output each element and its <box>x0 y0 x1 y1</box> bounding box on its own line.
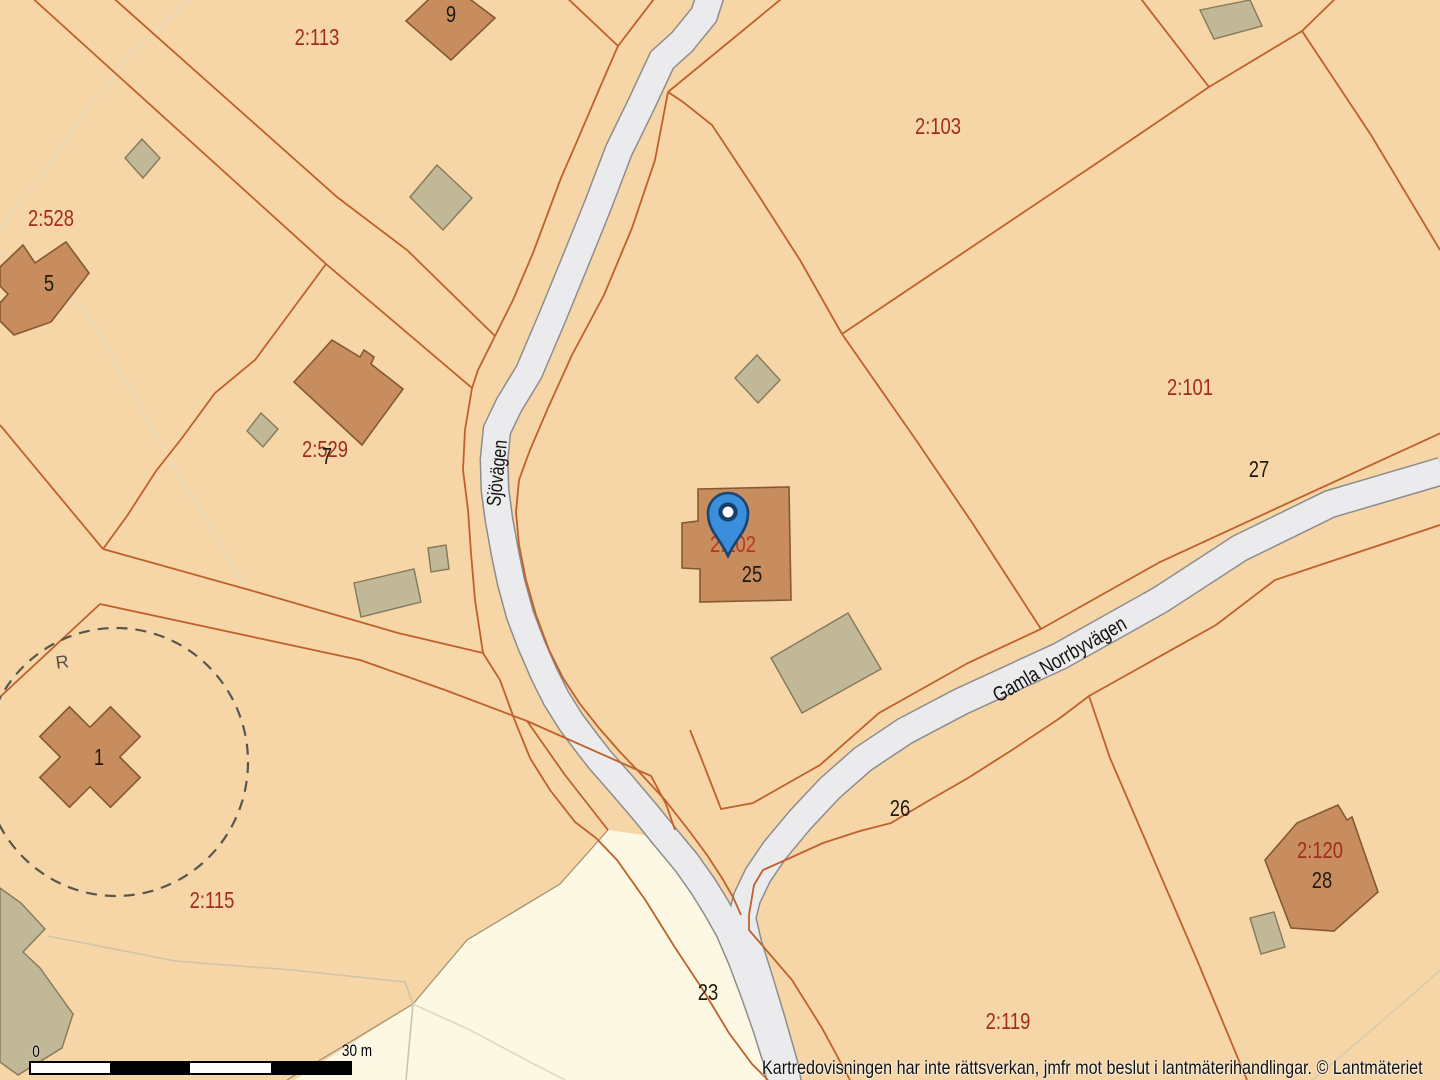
svg-text:2:528: 2:528 <box>28 206 74 231</box>
svg-text:5: 5 <box>44 271 54 296</box>
svg-text:R: R <box>54 651 70 673</box>
svg-text:26: 26 <box>890 796 910 821</box>
svg-text:2:119: 2:119 <box>986 1009 1031 1034</box>
svg-text:2:113: 2:113 <box>295 25 340 50</box>
svg-text:0: 0 <box>32 1043 40 1062</box>
svg-text:7: 7 <box>322 444 332 469</box>
svg-text:23: 23 <box>698 980 718 1005</box>
svg-text:2:115: 2:115 <box>190 888 235 913</box>
svg-text:27: 27 <box>1249 457 1269 482</box>
svg-text:30 m: 30 m <box>342 1042 372 1061</box>
svg-text:2:120: 2:120 <box>1297 838 1343 863</box>
svg-text:Kartredovisningen har inte rät: Kartredovisningen har inte rättsverkan, … <box>762 1057 1423 1079</box>
svg-text:25: 25 <box>742 562 762 587</box>
svg-text:1: 1 <box>94 745 104 770</box>
svg-text:2:101: 2:101 <box>1167 375 1213 400</box>
svg-text:9: 9 <box>446 2 456 27</box>
svg-text:28: 28 <box>1312 868 1332 893</box>
svg-text:2:103: 2:103 <box>915 114 961 139</box>
